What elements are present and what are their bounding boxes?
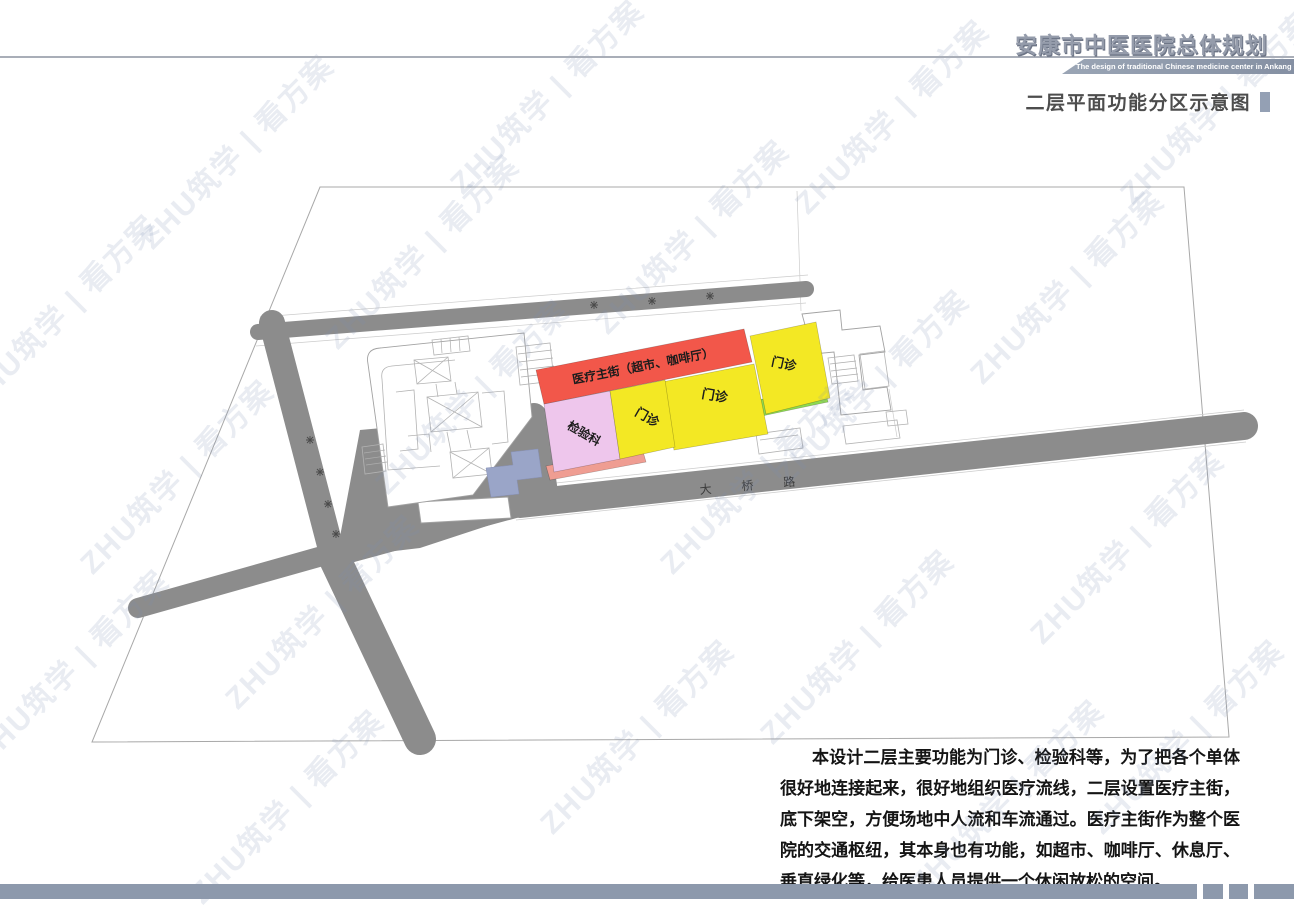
- footer-square: [1229, 884, 1248, 899]
- footer-bar-end: [1254, 884, 1294, 899]
- section-title: 二层平面功能分区示意图: [1025, 88, 1251, 115]
- footer-bar: [0, 884, 1197, 899]
- section-heading: 二层平面功能分区示意图: [1025, 88, 1270, 115]
- site-boundary: [92, 187, 1229, 742]
- description-paragraph: 本设计二层主要功能为门诊、检验科等，为了把各个单体很好地连接起来，很好地组织医疗…: [780, 742, 1240, 897]
- header-subtitle-bar: The design of traditional Chinese medici…: [1062, 59, 1294, 74]
- footer-square: [1203, 884, 1223, 899]
- page-title: 安康市中医医院总体规划: [1015, 28, 1268, 60]
- section-marker: [1260, 92, 1270, 112]
